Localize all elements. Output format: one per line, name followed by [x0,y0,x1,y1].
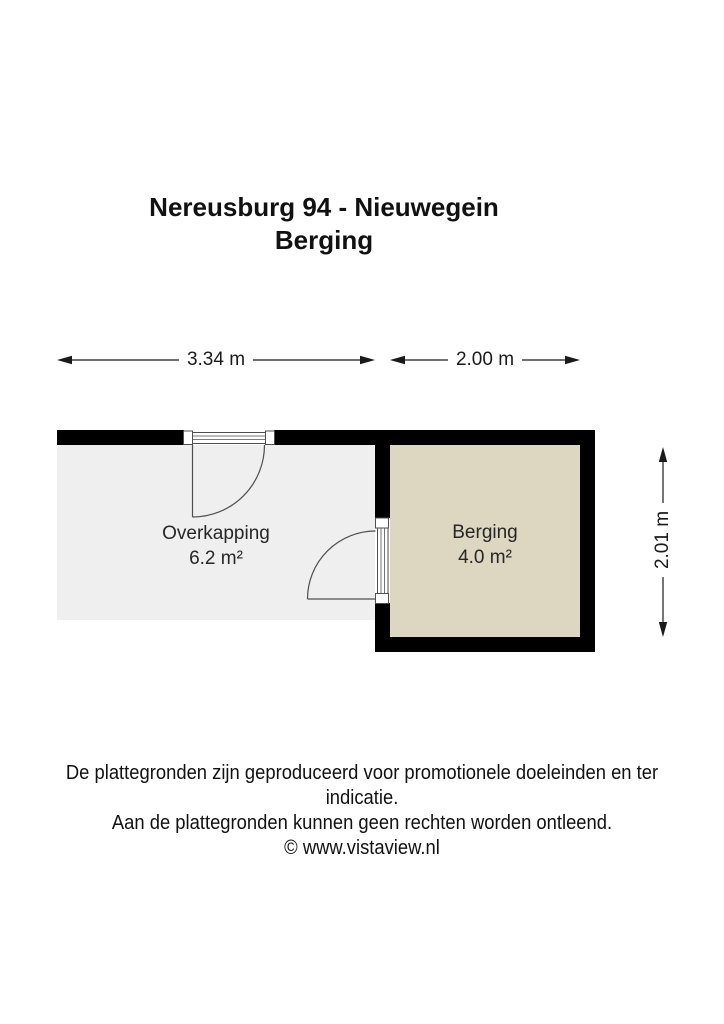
room-area-berging: 4.0 m² [390,545,580,570]
footer-disclaimer: De plattegronden zijn geproduceerd voor … [0,761,724,861]
room-label-berging: Berging 4.0 m² [390,520,580,570]
wall-berging-right [580,445,595,652]
footer-copyright: © www.vistaview.nl [29,836,695,861]
berging-door-jamb-bottom [376,594,389,604]
footer-line1: De plattegronden zijn geproduceerd voor … [29,761,695,811]
dim-arrowhead-down [659,622,667,637]
dim-arrowhead-up [659,447,667,462]
berging-door-jamb-top [376,518,389,528]
dim-arrowhead-right-2 [565,356,580,364]
footer-line2: Aan de plattegronden kunnen geen rechten… [29,811,695,836]
top-door-jamb-left [184,431,193,445]
dim-arrowhead-left-1 [57,356,72,364]
wall-top-right [274,430,595,445]
wall-top-left [57,430,184,445]
dim-arrowhead-right-1 [360,356,375,364]
room-name-berging: Berging [390,520,580,545]
top-door-jamb-right [266,431,275,445]
top-door-panel [193,433,266,444]
dim-label-berging-height: 2.01 m [652,503,674,577]
dim-label-berging-width: 2.00 m [448,349,522,371]
room-name-overkapping: Overkapping [57,521,375,546]
dim-label-overkapping-width: 3.34 m [179,349,253,371]
wall-berging-bottom [375,637,595,652]
dim-arrowhead-left-2 [390,356,405,364]
wall-berging-left-upper [375,445,390,518]
floorplan-page: Nereusburg 94 - Nieuwegein Berging [0,0,724,1024]
berging-door-panel [378,528,389,594]
room-area-overkapping: 6.2 m² [57,546,375,571]
floorplan-drawing [0,0,724,1024]
room-label-overkapping: Overkapping 6.2 m² [57,521,375,571]
